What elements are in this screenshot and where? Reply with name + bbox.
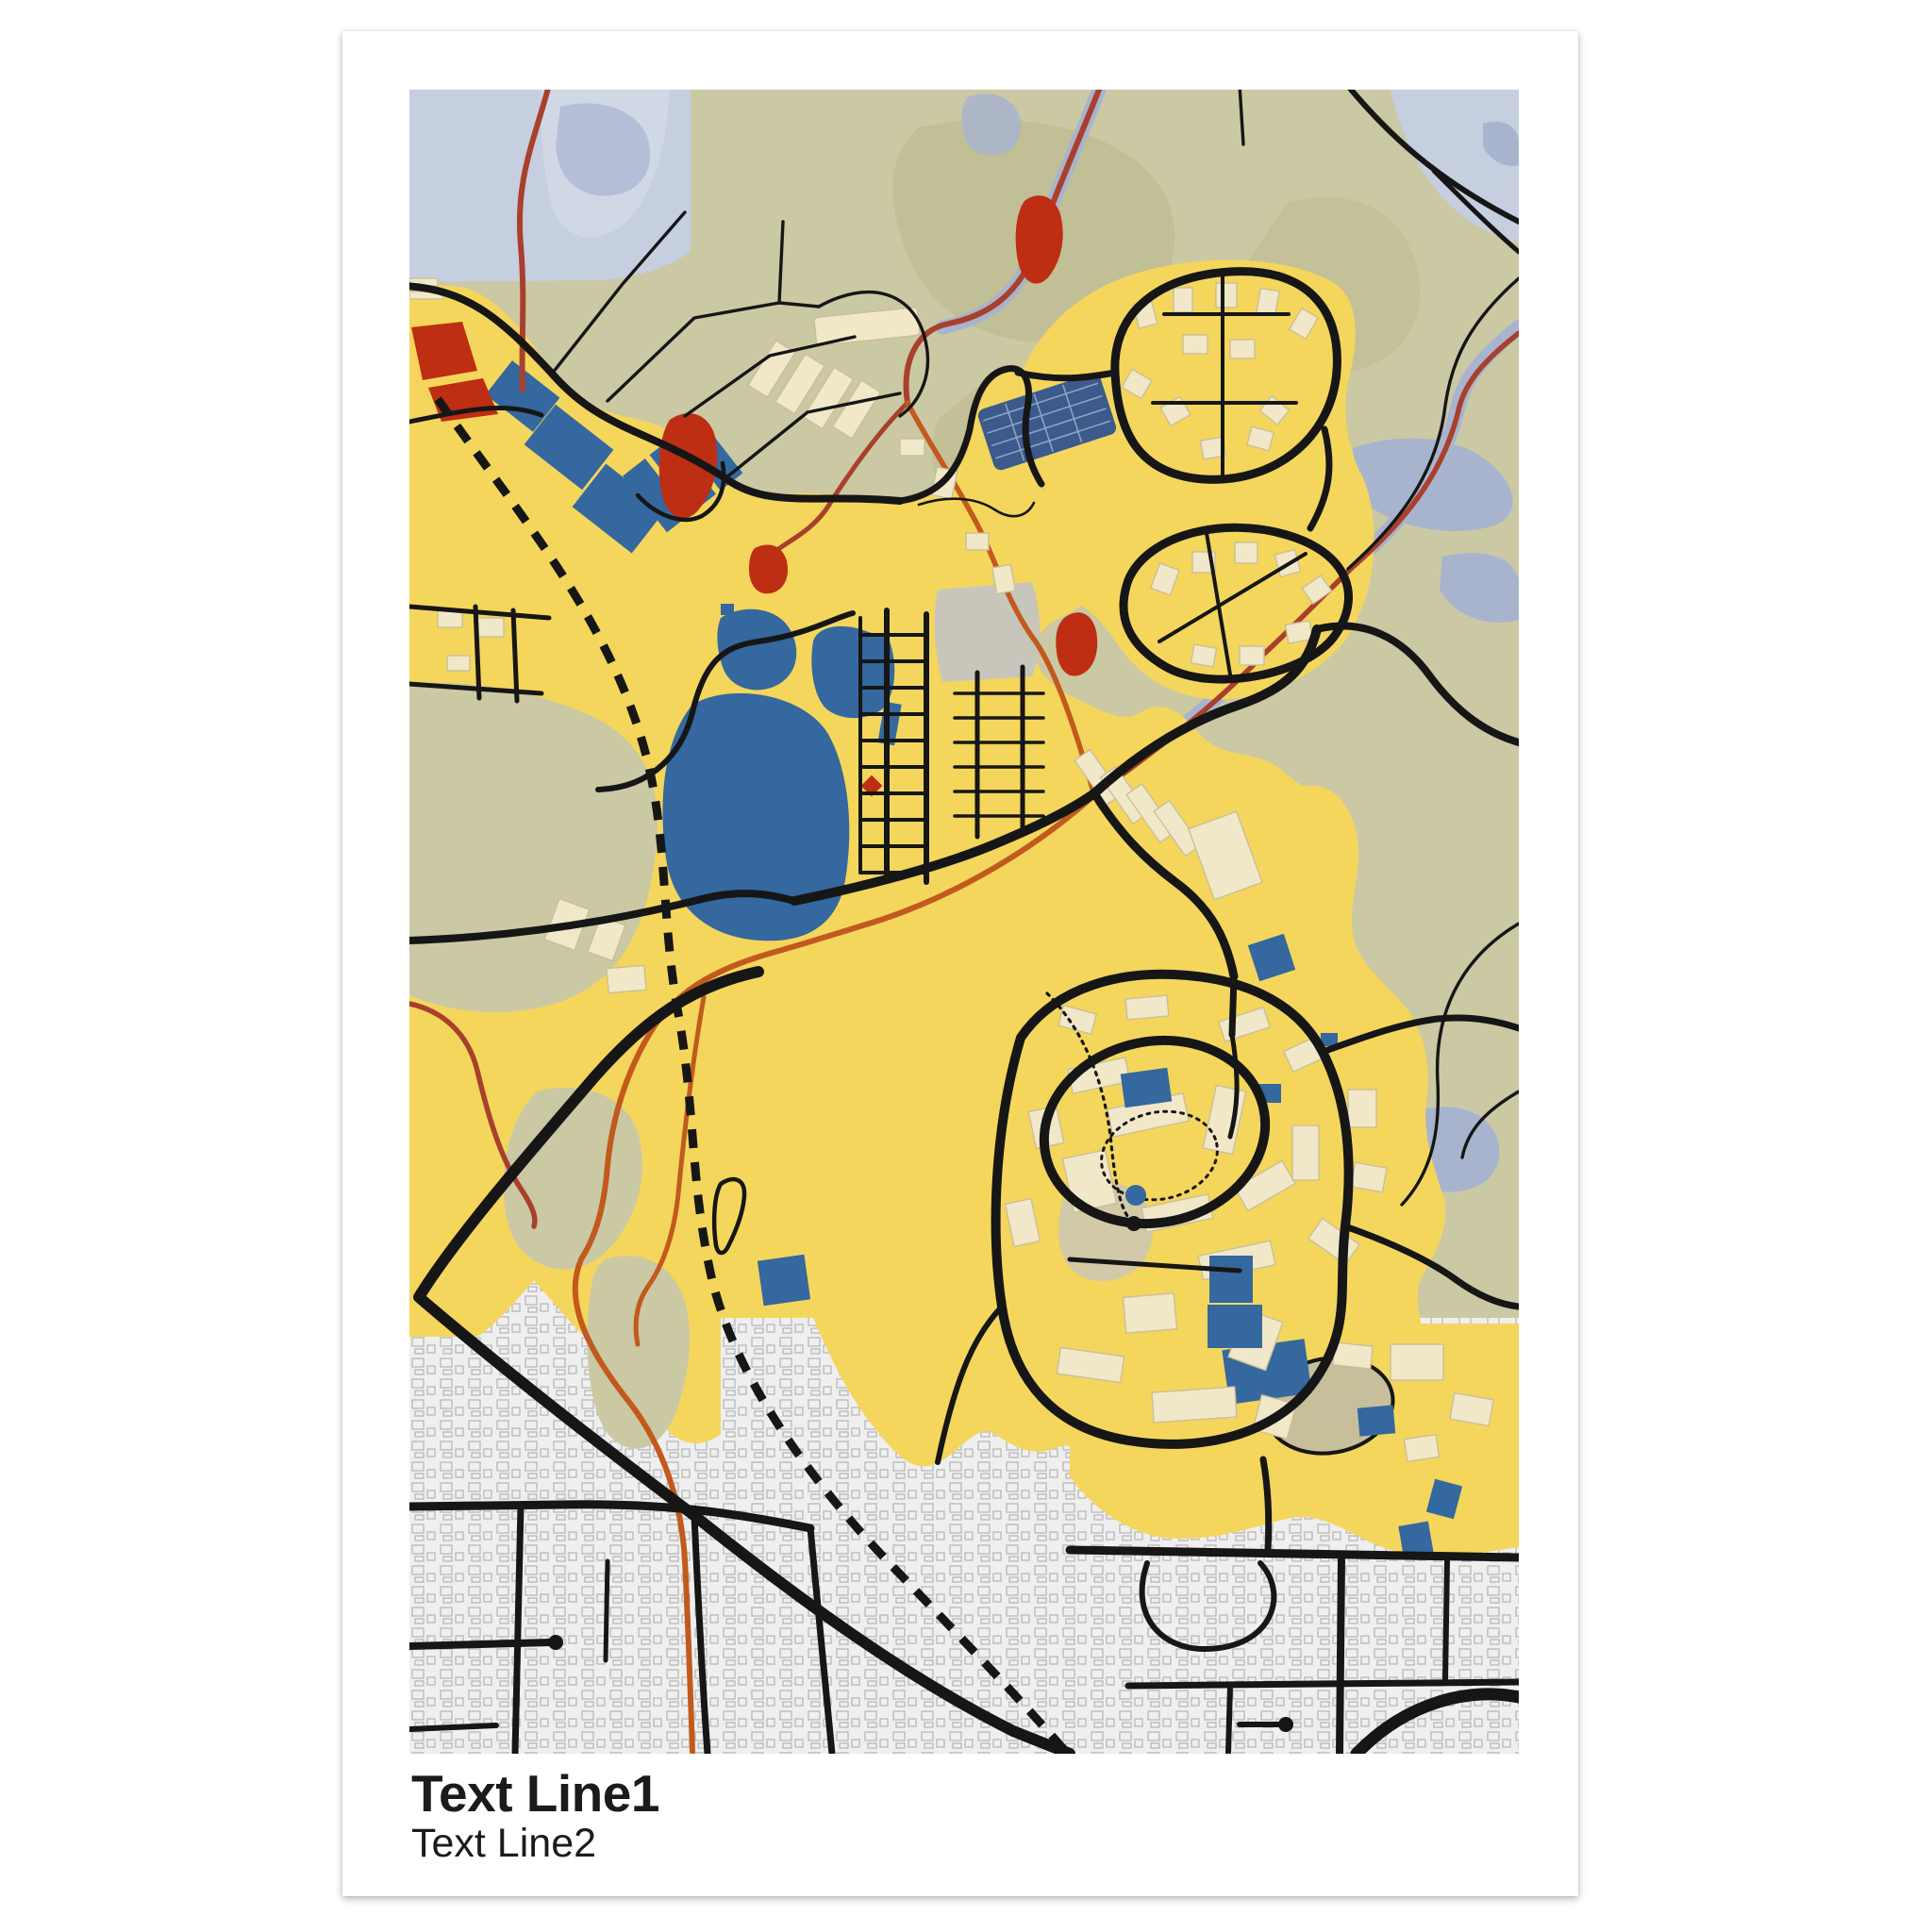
map-print-area — [409, 90, 1519, 1754]
poster-caption: Text Line1 Text Line2 — [411, 1767, 659, 1866]
poster-title: Text Line1 — [411, 1767, 659, 1821]
page-background: { "page": { "background": "#ffffff" }, "… — [0, 0, 1932, 1932]
city-map-graphic — [409, 90, 1519, 1754]
map-poster: Text Line1 Text Line2 — [342, 31, 1578, 1896]
campus-pond — [1125, 1185, 1146, 1206]
poster-subtitle: Text Line2 — [411, 1821, 659, 1866]
